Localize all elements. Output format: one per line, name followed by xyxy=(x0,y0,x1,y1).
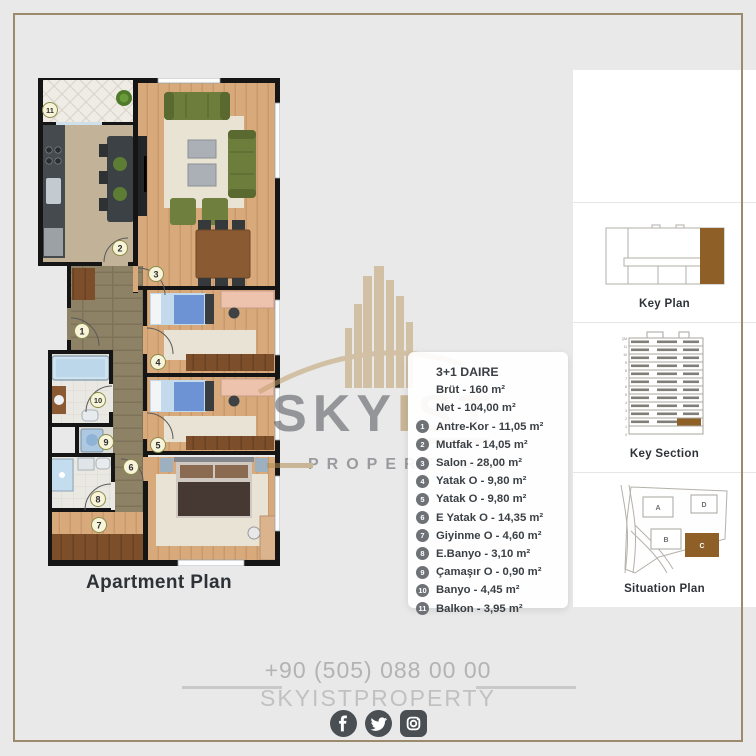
svg-text:3: 3 xyxy=(153,270,158,280)
legend-item-number: 1 xyxy=(416,420,429,433)
svg-text:4: 4 xyxy=(155,358,160,368)
svg-text:6: 6 xyxy=(625,385,627,389)
side-panel: Key Plan ÇM11109876543210 xyxy=(573,70,756,607)
key-section-label: Key Section xyxy=(630,448,699,460)
svg-text:7: 7 xyxy=(625,377,627,381)
twitter-icon[interactable] xyxy=(365,710,392,737)
legend-item-number: 9 xyxy=(416,566,429,579)
situation-plan-diagram: A B C D xyxy=(595,481,735,577)
side-panel-blank-section xyxy=(573,70,756,203)
legend-item-number: 5 xyxy=(416,493,429,506)
svg-text:2: 2 xyxy=(625,417,627,421)
key-plan-highlight xyxy=(700,228,724,284)
key-plan-section: Key Plan xyxy=(573,203,756,323)
legend-item: 4Yatak O - 9,80 m² xyxy=(414,472,562,490)
facebook-icon[interactable] xyxy=(330,710,357,737)
svg-text:5: 5 xyxy=(625,393,627,397)
key-section-section: ÇM11109876543210 Key Section xyxy=(573,323,756,473)
key-plan-diagram xyxy=(600,220,730,292)
svg-text:8: 8 xyxy=(625,369,627,373)
svg-text:0: 0 xyxy=(625,433,627,437)
legend-item: 1Antre-Kor - 11,05 m² xyxy=(414,418,562,436)
key-section-floor-labels: ÇM11109876543210 xyxy=(621,337,626,437)
legend-item-number: 10 xyxy=(416,584,429,597)
legend-item: 8E.Banyo - 3,10 m² xyxy=(414,545,562,563)
key-section-highlight xyxy=(677,419,701,426)
legend-item: 10Banyo - 4,45 m² xyxy=(414,581,562,599)
legend-item-number: 11 xyxy=(416,602,429,615)
social-icons-row xyxy=(0,710,756,737)
svg-text:1: 1 xyxy=(79,327,84,337)
footer-phone: +90 (505) 088 00 00 xyxy=(0,657,756,684)
legend-item: 11Balkon - 3,95 m² xyxy=(414,599,562,617)
svg-text:C: C xyxy=(699,543,704,550)
svg-text:B: B xyxy=(663,537,668,544)
legend-item: 3Salon - 28,00 m² xyxy=(414,454,562,472)
svg-text:10: 10 xyxy=(94,396,102,405)
key-plan-label: Key Plan xyxy=(639,298,690,310)
svg-text:4: 4 xyxy=(625,401,627,405)
apartment-plan-caption: Apartment Plan xyxy=(38,572,280,594)
legend-net: Net - 104,00 m² xyxy=(414,399,562,417)
legend-item: 9Çamaşır O - 0,90 m² xyxy=(414,563,562,581)
svg-text:11: 11 xyxy=(46,106,54,115)
footer-brand: SKYISTPROPERTY xyxy=(0,685,756,712)
legend-title: 3+1 DAIRE xyxy=(414,363,562,381)
svg-text:5: 5 xyxy=(155,441,160,451)
instagram-icon[interactable] xyxy=(400,710,427,737)
legend-item-number: 2 xyxy=(416,438,429,451)
svg-text:1: 1 xyxy=(625,425,627,429)
svg-text:3: 3 xyxy=(625,409,627,413)
svg-text:7: 7 xyxy=(96,521,101,531)
svg-text:8: 8 xyxy=(95,495,100,505)
key-section-diagram: ÇM11109876543210 xyxy=(615,330,715,442)
legend-item-number: 3 xyxy=(416,457,429,470)
situation-plan-label: Situation Plan xyxy=(624,583,705,595)
svg-text:2: 2 xyxy=(117,244,122,254)
legend-item-number: 7 xyxy=(416,529,429,542)
legend-item: 2Mutfak - 14,05 m² xyxy=(414,436,562,454)
legend-item-number: 8 xyxy=(416,547,429,560)
svg-text:9: 9 xyxy=(103,438,108,448)
svg-text:D: D xyxy=(701,502,706,509)
room-legend-panel: 3+1 DAIRE Brüt - 160 m² Net - 104,00 m² … xyxy=(408,352,568,608)
legend-item: 6E Yatak O - 14,35 m² xyxy=(414,509,562,527)
legend-item: 7Giyinme O - 4,60 m² xyxy=(414,527,562,545)
apartment-floor-plan: 1 2 3 4 5 6 7 8 9 10 11 xyxy=(38,78,280,566)
svg-text:11: 11 xyxy=(623,345,627,349)
legend-brut: Brüt - 160 m² xyxy=(414,381,562,399)
legend-item-number: 6 xyxy=(416,511,429,524)
situation-plan-section: A B C D Situation Plan xyxy=(573,473,756,607)
brochure-canvas: 1 2 3 4 5 6 7 8 9 10 11 Apartment Plan xyxy=(0,0,756,756)
svg-text:A: A xyxy=(655,505,660,512)
svg-text:10: 10 xyxy=(623,353,627,357)
svg-text:6: 6 xyxy=(128,463,133,473)
legend-item-number: 4 xyxy=(416,475,429,488)
svg-text:ÇM: ÇM xyxy=(621,337,626,341)
svg-text:9: 9 xyxy=(625,361,627,365)
legend-item: 5Yatak O - 9,80 m² xyxy=(414,490,562,508)
